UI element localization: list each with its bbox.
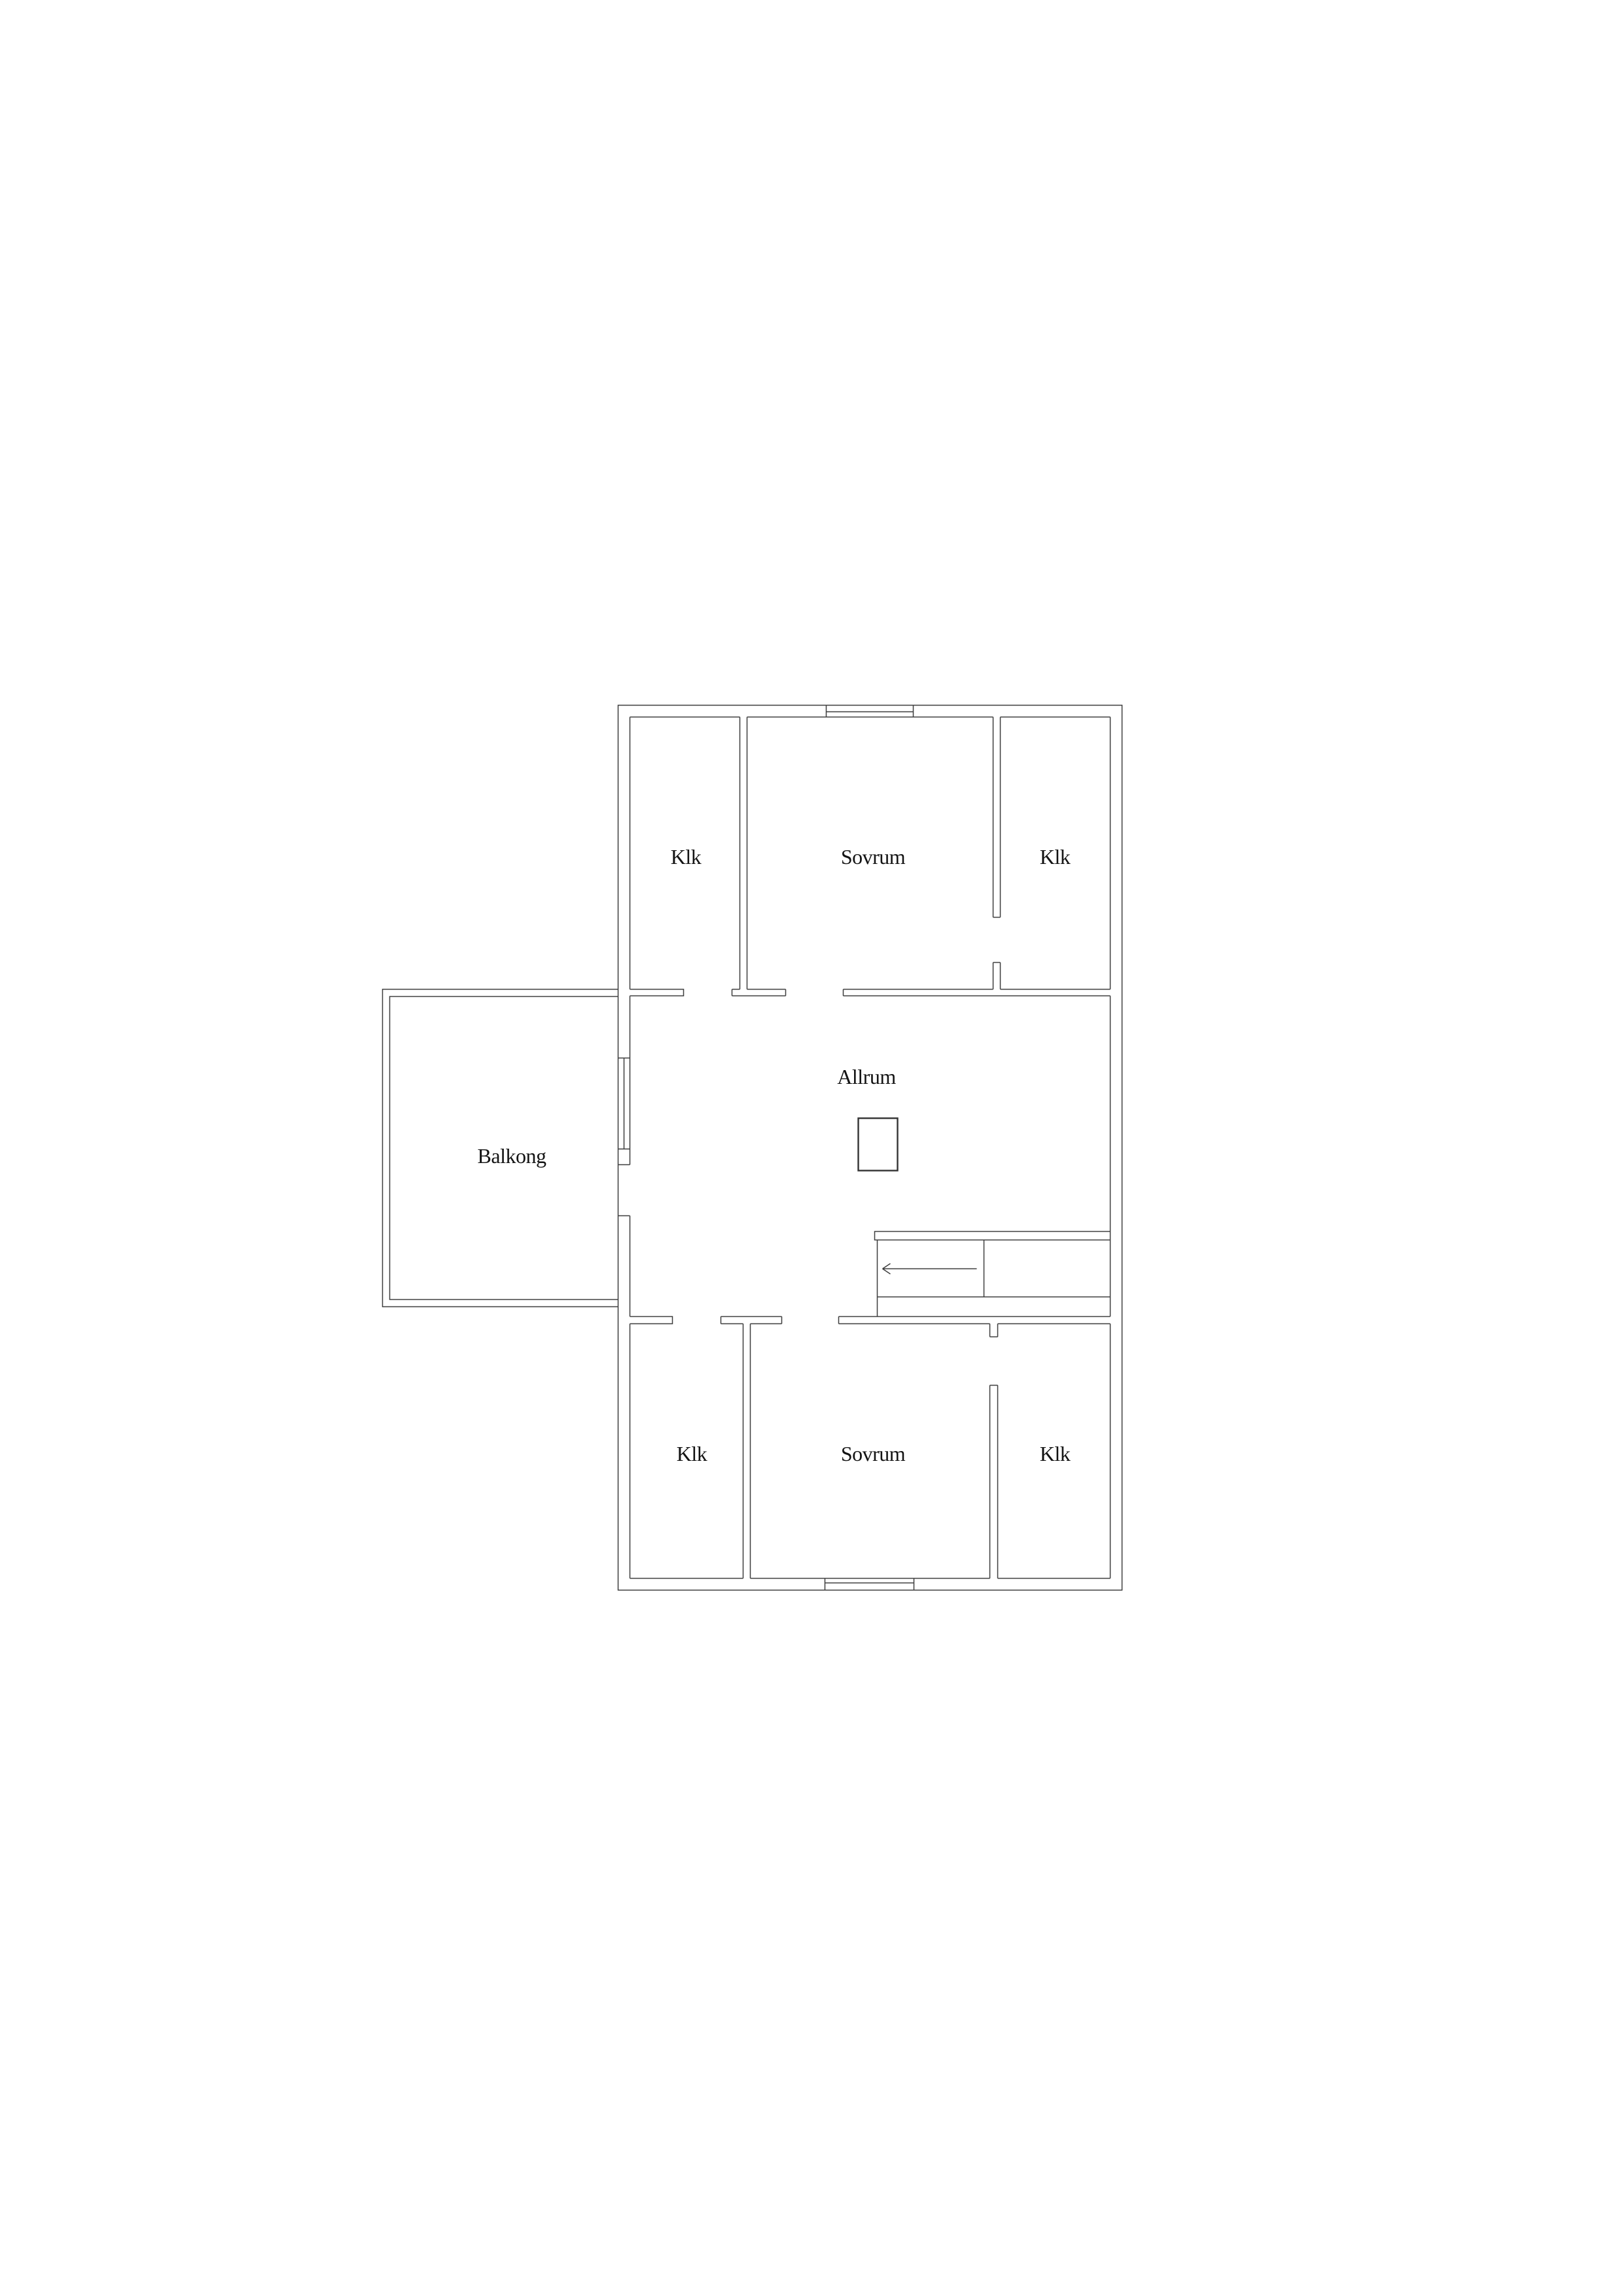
svg-text:Allrum: Allrum [837,1065,896,1088]
svg-text:Sovrum: Sovrum [841,1442,906,1465]
svg-text:Klk: Klk [677,1442,707,1465]
svg-text:Balkong: Balkong [478,1144,546,1168]
svg-text:Sovrum: Sovrum [841,845,906,869]
svg-text:Klk: Klk [671,845,702,869]
svg-text:Klk: Klk [1040,845,1071,869]
svg-text:Klk: Klk [1040,1442,1071,1465]
